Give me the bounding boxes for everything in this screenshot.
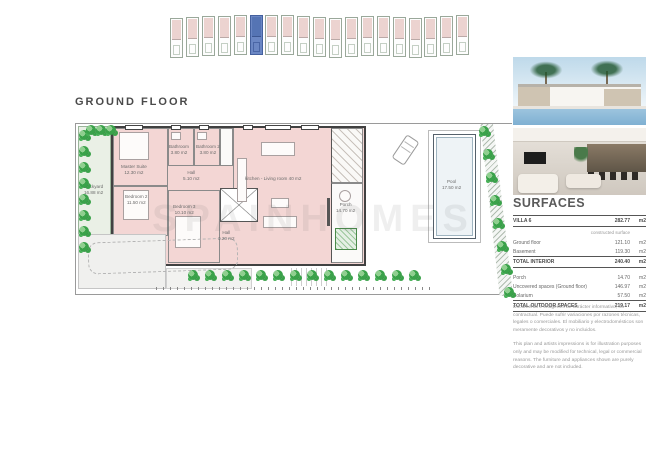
tree-icon <box>106 125 116 135</box>
tree-icon <box>79 162 89 172</box>
window-icon <box>171 125 181 130</box>
site-plan-unit <box>424 17 437 57</box>
site-plan-unit <box>313 17 326 57</box>
photo-kitchen <box>587 144 646 172</box>
site-plan-unit <box>456 15 469 55</box>
window-icon <box>125 125 143 130</box>
page: GROUND FLOOR Backyard16.88 m2 <box>0 0 650 450</box>
tree-icon <box>256 270 266 280</box>
sink-icon <box>197 132 207 140</box>
disclaimer-en: This plan and artists impressions is for… <box>513 341 645 371</box>
site-plan-unit <box>409 18 422 58</box>
photo-plant <box>574 147 588 165</box>
site-plan-unit <box>440 16 453 56</box>
planter-icon <box>335 228 357 250</box>
site-plan-unit <box>265 15 278 55</box>
roof-hatch <box>331 128 363 183</box>
tree-icon <box>79 178 89 188</box>
disclaimer-es: Documento e imágenes de carácter informa… <box>513 304 645 334</box>
tree-icon <box>490 195 500 205</box>
closet <box>220 128 233 166</box>
room-label-bedroom-3: Bedroom 310.10 m2 <box>173 204 195 217</box>
site-plan-unit <box>186 17 199 57</box>
room-label-bathroom-2: Bathroom 23.80 m2 <box>196 144 220 157</box>
tree-icon <box>239 270 249 280</box>
site-plan-unit <box>234 15 247 55</box>
tree-icon <box>392 270 402 280</box>
tree-icon <box>324 270 334 280</box>
site-plan-unit <box>393 17 406 57</box>
photo-ceiling <box>513 128 646 142</box>
site-plan-unit <box>281 15 294 55</box>
tree-icon <box>188 270 198 280</box>
tree-icon <box>479 126 489 136</box>
surfaces-panel: SURFACES VILLA 6 282.77 m2 constructed s… <box>513 196 646 312</box>
parking-car-outline-icon <box>87 237 238 274</box>
site-plan-unit <box>202 16 215 56</box>
tree-icon <box>497 241 507 251</box>
tree-icon <box>96 125 106 135</box>
room-label-master-suite: Master Suite12.30 m2 <box>121 164 147 177</box>
tree-icon <box>79 226 89 236</box>
site-plan-unit <box>329 18 342 58</box>
table-row-ground-floor: Ground floor 121.10 m2 <box>513 238 646 247</box>
surfaces-heading: SURFACES <box>513 196 646 210</box>
total-interior-row: TOTAL INTERIOR 240.40 m2 <box>513 256 646 268</box>
photo-sofa <box>566 174 601 189</box>
tree-icon <box>79 146 89 156</box>
tree-icon <box>483 149 493 159</box>
sofa-icon <box>263 216 297 228</box>
tree-icon <box>205 270 215 280</box>
tree-icon <box>341 270 351 280</box>
palm-tree-icon <box>529 61 563 79</box>
room-label-hall-2: Hall3.20 m2 <box>218 230 235 243</box>
dining-table-icon <box>261 142 295 156</box>
window-icon <box>265 125 291 130</box>
tree-icon <box>79 210 89 220</box>
coffee-table-icon <box>271 198 289 208</box>
disclaimers: Documento e imágenes de carácter informa… <box>513 304 645 372</box>
photo-pool <box>513 106 646 125</box>
site-plan-unit <box>361 16 374 56</box>
bed-icon <box>119 132 149 160</box>
photo-tv <box>524 152 547 164</box>
site-plan <box>170 12 482 64</box>
site-plan-unit-highlighted <box>250 15 263 55</box>
car-icon <box>391 134 419 166</box>
tv-icon <box>327 198 330 226</box>
floor-plan: Backyard16.88 m2 <box>75 123 512 295</box>
tree-icon <box>86 125 96 135</box>
window-icon <box>243 125 253 130</box>
room-label-bathroom: Bathroom3.80 m2 <box>169 144 189 157</box>
tree-icon <box>79 242 89 252</box>
tree-icon <box>501 264 511 274</box>
fence-line <box>156 287 436 290</box>
photo-sofa <box>518 174 558 193</box>
pool: Pool17.50 m2 <box>433 134 476 239</box>
site-plan-unit <box>345 17 358 57</box>
site-plan-unit <box>377 16 390 56</box>
window-icon <box>199 125 209 130</box>
room-label-pool: Pool17.50 m2 <box>442 179 461 192</box>
table-row-porch: Porch 14.70 m2 <box>513 273 646 282</box>
villa-total-row: VILLA 6 282.77 m2 <box>513 215 646 227</box>
room-label-hall: Hall5.10 m2 <box>183 170 200 183</box>
table-row-uncovered-spaces: Uncovered spaces (Ground floor) 146.97 m… <box>513 282 646 291</box>
tree-icon <box>375 270 385 280</box>
site-plan-unit <box>297 16 310 56</box>
table-row-basement: Basement 119.30 m2 <box>513 247 646 256</box>
interior-photo <box>513 128 646 195</box>
constructed-surface-note: constructed surface <box>513 227 646 238</box>
tree-icon <box>273 270 283 280</box>
sink-icon <box>171 132 181 140</box>
tree-icon <box>290 270 300 280</box>
tree-icon <box>79 194 89 204</box>
room-label-porch: Porch14.70 m2 <box>336 202 355 215</box>
site-plan-unit <box>218 16 231 56</box>
exterior-photo <box>513 57 646 125</box>
palm-tree-icon <box>590 60 624 78</box>
page-title: GROUND FLOOR <box>75 96 189 108</box>
tree-icon <box>358 270 368 280</box>
tree-icon <box>409 270 419 280</box>
room-label-bedroom-2: Bedroom 211.50 m2 <box>125 194 147 207</box>
site-plan-unit <box>170 18 183 58</box>
tree-icon <box>222 270 232 280</box>
room-label-kitchen-living: kitchen - Living room 40 m2 <box>245 176 301 182</box>
tree-icon <box>307 270 317 280</box>
patio-table-icon <box>339 190 351 202</box>
table-row-solarium: Solarium 57.50 m2 <box>513 291 646 300</box>
window-icon <box>301 125 319 130</box>
